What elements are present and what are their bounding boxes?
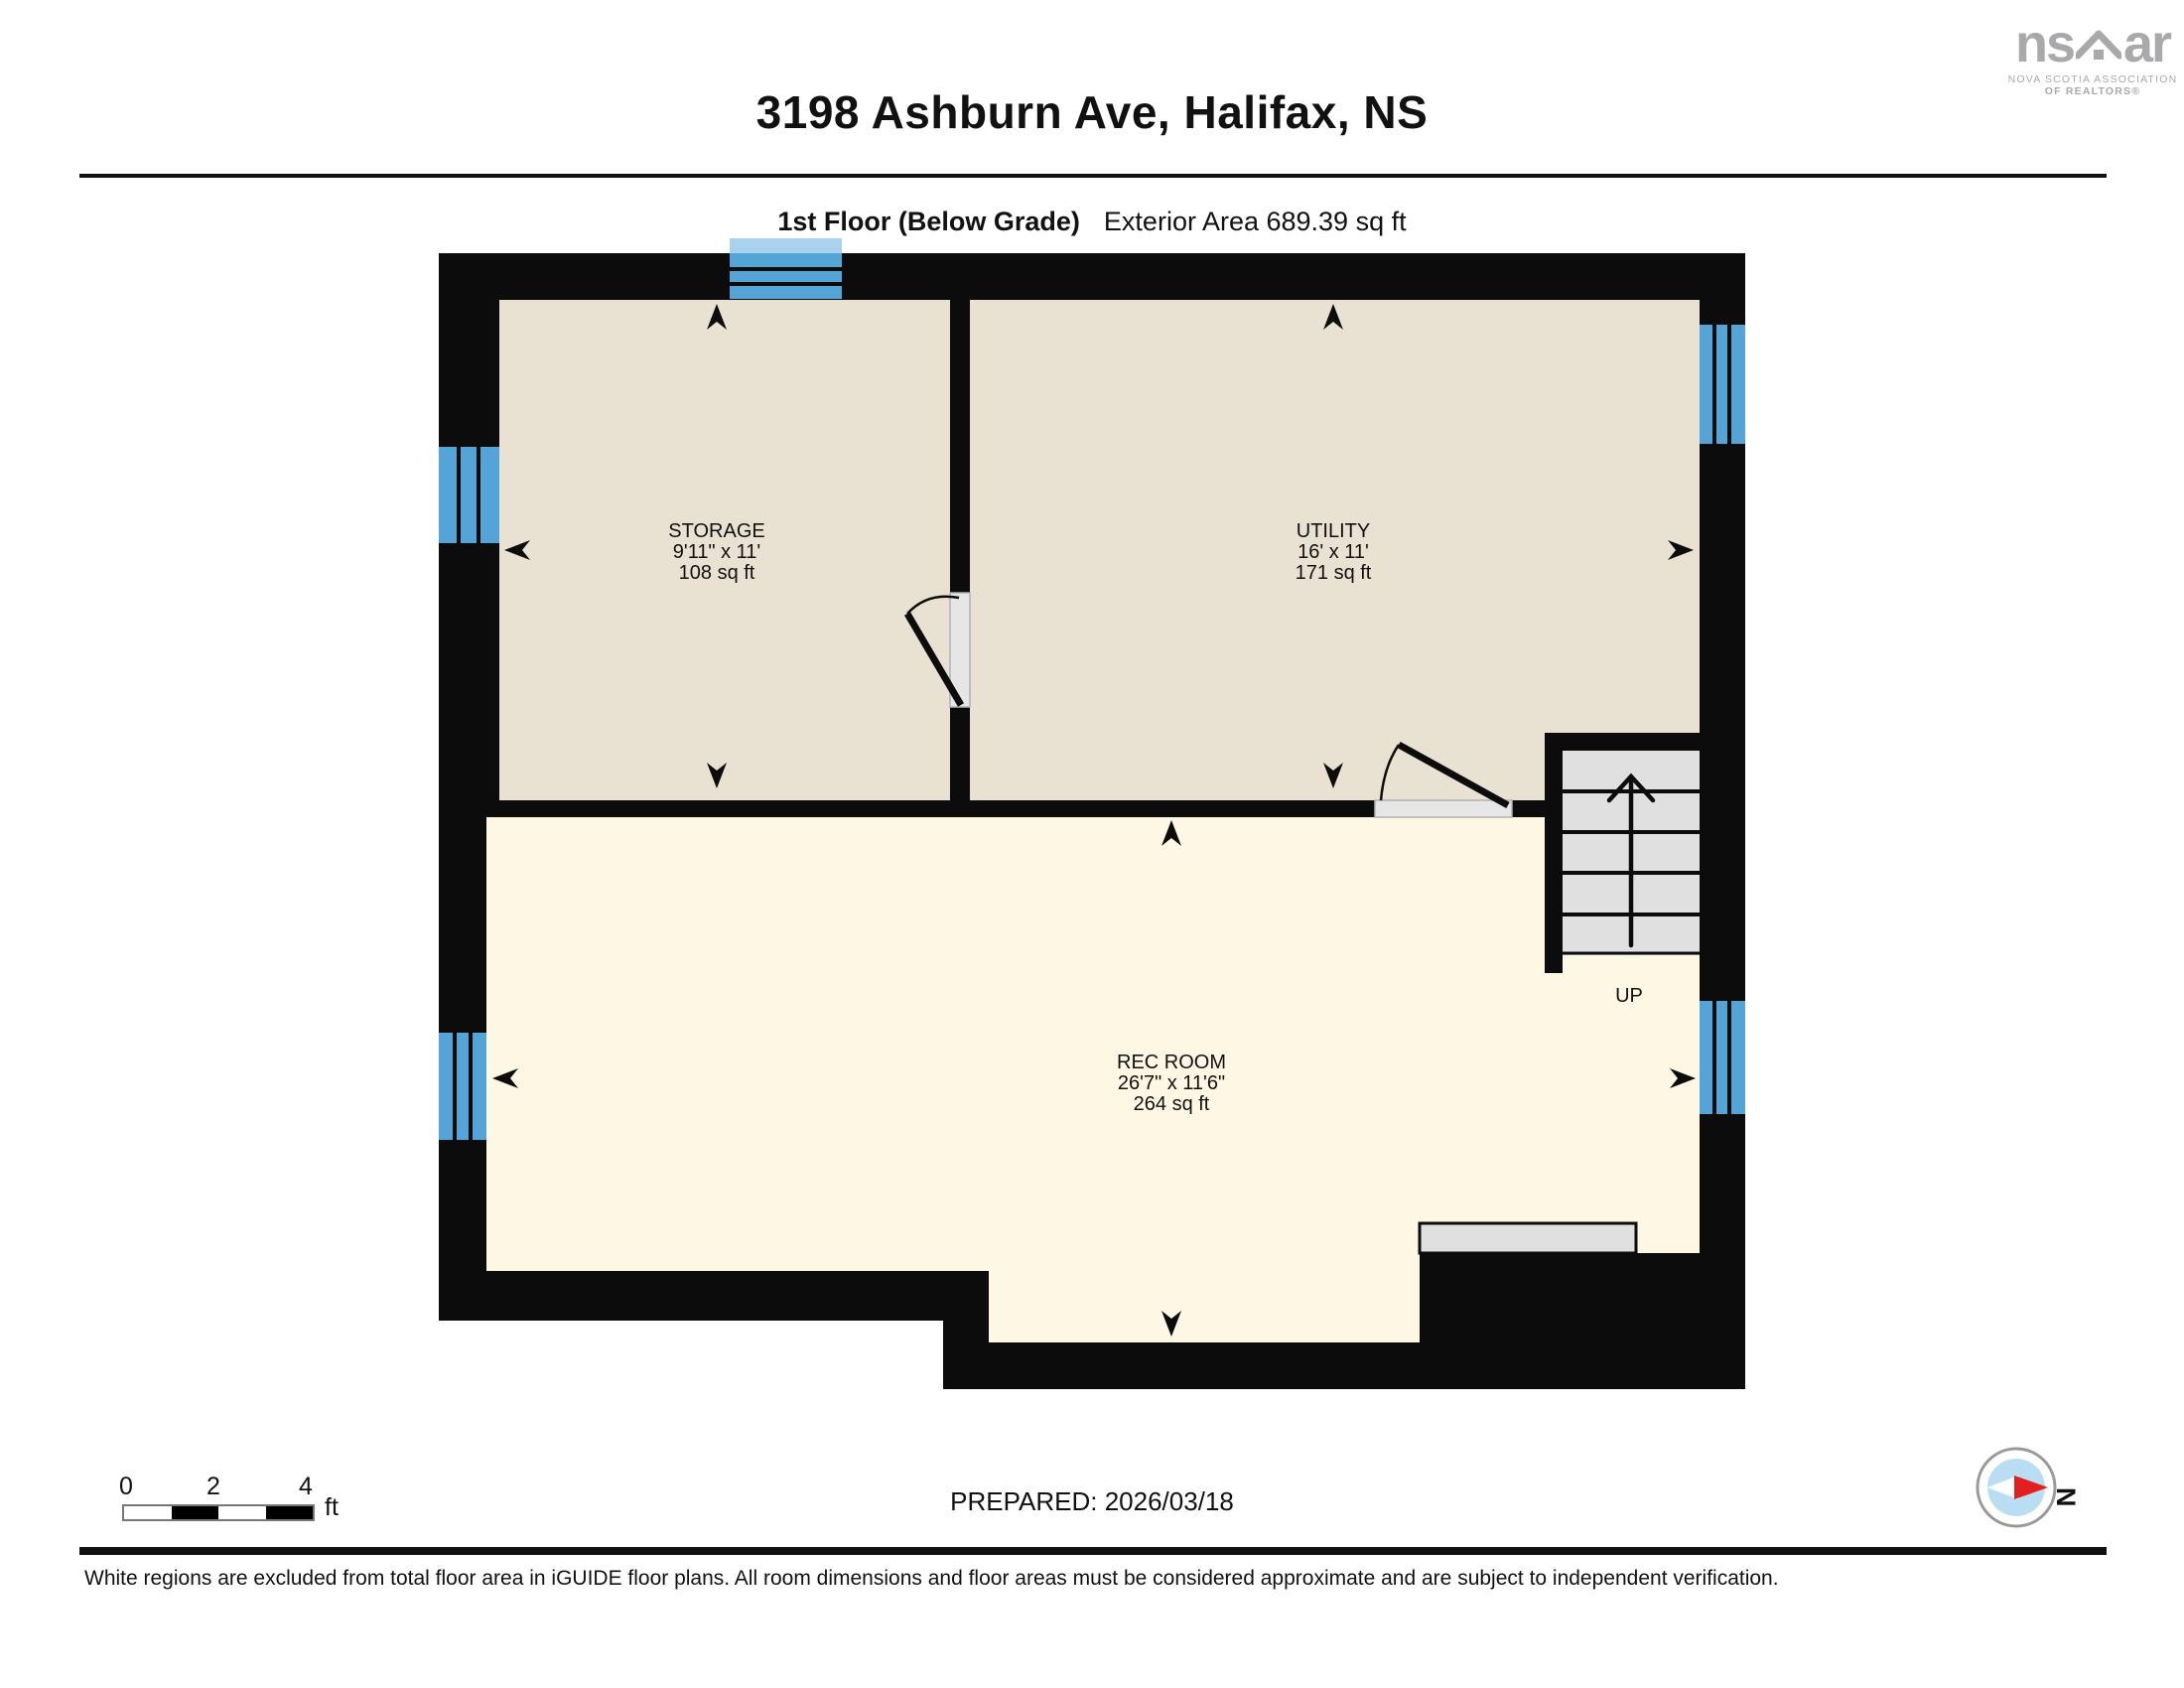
stairs-up-label: UP <box>1615 985 1643 1007</box>
storage-name: STORAGE <box>668 520 764 542</box>
floor-plan: STORAGE 9'11" x 11' 108 sq ft UTILITY 16… <box>0 0 2184 1688</box>
window-rec-right <box>1700 1001 1745 1114</box>
utility-area: 171 sq ft <box>1296 562 1372 584</box>
staircase <box>1563 751 1700 955</box>
rec-room-name: REC ROOM <box>1117 1052 1226 1073</box>
utility-dimensions: 16' x 11' <box>1297 541 1369 563</box>
compass: N <box>1969 1440 2098 1539</box>
rec-room-area: 264 sq ft <box>1134 1093 1210 1115</box>
utility-name: UTILITY <box>1297 520 1370 542</box>
wall-mid-horizontal <box>439 800 1375 817</box>
wall-mid-horizontal-short <box>1512 800 1547 817</box>
storage-area: 108 sq ft <box>679 562 755 584</box>
compass-north-label: N <box>2051 1487 2081 1507</box>
rec-room-floor <box>486 817 1700 1271</box>
rec-room-dimensions: 26'7" x 11'6" <box>1118 1072 1225 1094</box>
window-storage-top <box>730 238 842 299</box>
prepared-date: PREPARED: 2026/03/18 <box>0 1486 2184 1517</box>
wall-stair-top <box>1545 733 1700 751</box>
wall-storage-utility-upper <box>950 300 970 593</box>
window-utility-right <box>1700 325 1745 444</box>
wall-bottom-right-mass <box>1420 1253 1745 1389</box>
wall-top <box>439 253 1745 300</box>
storage-dimensions: 9'11" x 11' <box>673 541 761 563</box>
footer-disclaimer: White regions are excluded from total fl… <box>84 1567 2110 1591</box>
window-storage-left <box>439 447 499 543</box>
rec-room-floor-extension <box>989 1271 1435 1342</box>
footer-divider <box>79 1547 2107 1555</box>
built-in-shelf <box>1420 1223 1636 1253</box>
wall-stair-left <box>1545 733 1563 973</box>
wall-left-upper <box>439 300 499 817</box>
wall-bottom-left <box>439 1271 989 1321</box>
window-rec-left <box>439 1033 486 1140</box>
